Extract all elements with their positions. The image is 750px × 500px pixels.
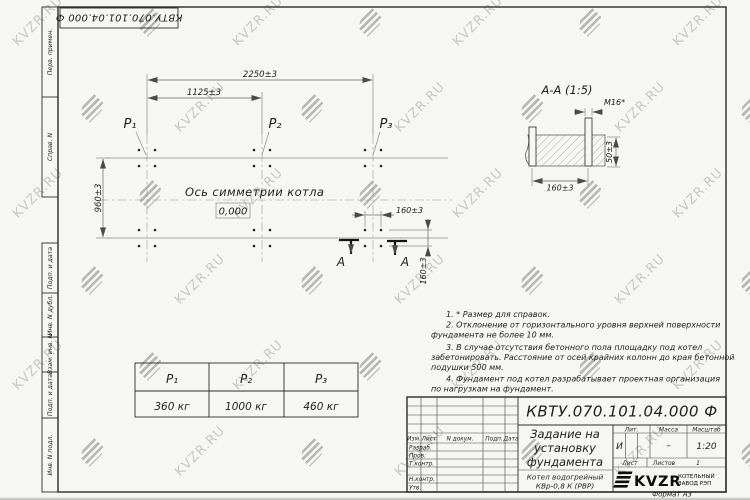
table-cell: 360 кг xyxy=(154,401,190,413)
anchor-bolt-dot xyxy=(380,245,383,248)
anchor-bolt-dot xyxy=(380,149,383,152)
section-dim-width: 160±3 xyxy=(546,184,573,193)
anchor-bolt-dot xyxy=(364,245,367,248)
scale-value: 1:20 xyxy=(696,442,716,452)
doc-number-rotated: КВТУ.070.101.04.000 Ф xyxy=(55,12,182,23)
anchor-bolt-dot xyxy=(253,149,256,152)
doc-number: КВТУ.070.101.04.000 Ф xyxy=(526,403,717,421)
tb-row-label: Разраб. xyxy=(409,446,432,452)
note-line: подушки 500 мм. xyxy=(431,363,504,372)
massa-value: – xyxy=(666,441,671,451)
section-cut-marks: А А xyxy=(336,240,409,269)
anchor-bolt-dot xyxy=(364,149,367,152)
anchor-bolt-dot xyxy=(138,229,141,232)
tb-col-label: Лист xyxy=(421,437,437,443)
anchor-bolt-dot xyxy=(253,165,256,168)
dim-bolt-x: 160±3 xyxy=(396,206,423,215)
anchor-bolt-dot xyxy=(154,165,157,168)
sidebar-label: Перв. примен. xyxy=(47,29,54,75)
load-label-p3: P₃ xyxy=(379,117,392,132)
product-name-line: Котел водогрейный xyxy=(527,473,604,482)
load-label-p1: P₁ xyxy=(123,117,136,132)
dim-total-width: 2250±3 xyxy=(243,70,277,80)
table-cell: 1000 кг xyxy=(225,401,267,413)
kvzr-logo: KVZR КОТЕЛЬНЫЙ ЗАВОД РЭП xyxy=(613,472,714,491)
format-label: Формат А3 xyxy=(652,491,692,499)
anchor-bolt-dot xyxy=(253,229,256,232)
kvzr-logo-icon xyxy=(613,472,632,488)
sheet-label: Лист xyxy=(621,460,638,467)
kvzr-logo-text: KVZR xyxy=(634,474,681,490)
sidebar-label: Взам. инв. N xyxy=(47,334,54,375)
section-title: А-А (1:5) xyxy=(540,83,592,97)
table-header: P₂ xyxy=(240,372,252,386)
plan-view: 2250±3 1125±3 960±3 P₁ P₂ P₃ Ось симметр… xyxy=(94,70,452,285)
table-cell: 460 кг xyxy=(303,401,339,413)
massa-label: Масса xyxy=(659,427,678,434)
concrete-foundation xyxy=(526,135,605,166)
note-line: по нагрузкам на фундамент. xyxy=(431,385,554,394)
anchor-bolt-dot xyxy=(253,245,256,248)
symmetry-axis-label: Ось симметрии котла xyxy=(185,185,324,199)
note-line: 4. Фундамент под котел разрабатывает про… xyxy=(446,375,720,384)
table-header: P₁ xyxy=(166,372,178,386)
sheets-total-label: Листов xyxy=(652,460,676,467)
tb-row-label: Пров. xyxy=(409,454,426,460)
sheets-total-value: 1 xyxy=(696,460,700,467)
lit-value: И xyxy=(616,442,623,452)
load-label-p2: P₂ xyxy=(268,117,281,132)
anchor-bolt-dot xyxy=(154,229,157,232)
anchor-bolt-dot xyxy=(138,245,141,248)
dim-bolt-y: 160±3 xyxy=(419,257,428,284)
section-dim-height: 50±3 xyxy=(605,141,614,163)
anchor-stud-left xyxy=(529,127,536,166)
leader-line xyxy=(373,132,380,155)
note-line: 1. * Размер для справок. xyxy=(446,310,550,319)
notes: 1. * Размер для справок. 2. Отклонение о… xyxy=(431,310,734,394)
anchor-bolt-dot xyxy=(154,245,157,248)
leader-line xyxy=(136,132,146,155)
tb-col-label: N докум. xyxy=(447,437,474,443)
kvzr-caption-line: КОТЕЛЬНЫЙ xyxy=(678,473,715,480)
leader-line xyxy=(262,132,269,155)
anchor-bolt-dot xyxy=(364,165,367,168)
bolt-thread-label: М16* xyxy=(604,98,625,107)
anchor-bolt-dot xyxy=(380,165,383,168)
sidebar-label: Подп. и дата xyxy=(47,247,54,289)
lit-label: Лит. xyxy=(624,427,639,434)
section-letter: А xyxy=(400,255,409,269)
drawing-sheet: KVZR.RUKVZR.RUKVZR.RUKVZR.RUKVZR.RUKVZR.… xyxy=(0,0,750,500)
doc-title-line: фундамента xyxy=(527,455,603,469)
tb-row-label: Т.контр. xyxy=(409,462,434,468)
kvzr-caption-line: ЗАВОД РЭП xyxy=(678,481,711,487)
loads-table: P₁ P₂ P₃ 360 кг 1000 кг 460 кг xyxy=(135,363,358,417)
anchor-stud-right xyxy=(585,118,592,166)
tb-col-label: Подп. xyxy=(485,437,503,443)
note-line: 2. Отклонение от горизонтального уровня … xyxy=(446,321,720,330)
anchor-bolt-dot xyxy=(269,149,272,152)
level-mark: 0,000 xyxy=(219,207,248,218)
title-block: Изм. Лист N докум. Подп. Дата Разраб. Пр… xyxy=(407,397,726,492)
anchor-bolt-dot xyxy=(380,229,383,232)
note-line: фундамента не более 10 мм. xyxy=(431,331,554,340)
note-line: 3. В случае отсутствия бетонного пола пл… xyxy=(446,343,702,352)
anchor-bolt-dot xyxy=(154,149,157,152)
tb-row-label: Утв. xyxy=(409,486,421,492)
anchor-bolt-dot xyxy=(138,165,141,168)
anchor-bolt-dot xyxy=(364,229,367,232)
sidebar-label: Справ. N xyxy=(47,132,54,161)
sidebar-label: Инв. N дубл. xyxy=(46,295,54,336)
sidebar-label: Инв. N подл. xyxy=(47,435,54,476)
dim-depth: 960±3 xyxy=(94,184,104,213)
anchor-bolt-dot xyxy=(138,149,141,152)
dim-half-width: 1125±3 xyxy=(187,88,221,98)
scale-label: Масштаб xyxy=(692,427,721,434)
blueprint-svg: Перв. примен. Справ. N Подп. и дата Инв.… xyxy=(0,0,750,500)
designation-box-rotated: КВТУ.070.101.04.000 Ф xyxy=(55,8,182,28)
gost-sidebar: Перв. примен. Справ. N Подп. и дата Инв.… xyxy=(42,7,58,492)
table-header: P₃ xyxy=(315,372,327,386)
section-view: А-А (1:5) М16* 160±3 50±3 xyxy=(526,83,626,193)
anchor-bolt-dot xyxy=(269,229,272,232)
note-line: забетонировать. Расстояние от осей крайн… xyxy=(431,353,734,362)
product-name-line: КВр-0,8 К (РВР) xyxy=(536,482,595,491)
tb-col-label: Дата xyxy=(502,437,518,443)
doc-title-line: установку xyxy=(533,441,596,455)
doc-title-line: Задание на xyxy=(530,427,600,441)
tb-col-label: Изм. xyxy=(407,437,421,443)
sidebar-label: Подп. и дата xyxy=(47,374,54,416)
section-letter: А xyxy=(336,255,345,269)
anchor-bolt-dot xyxy=(269,245,272,248)
anchor-bolt-dot xyxy=(269,165,272,168)
tb-row-label: Н.контр. xyxy=(409,477,435,483)
